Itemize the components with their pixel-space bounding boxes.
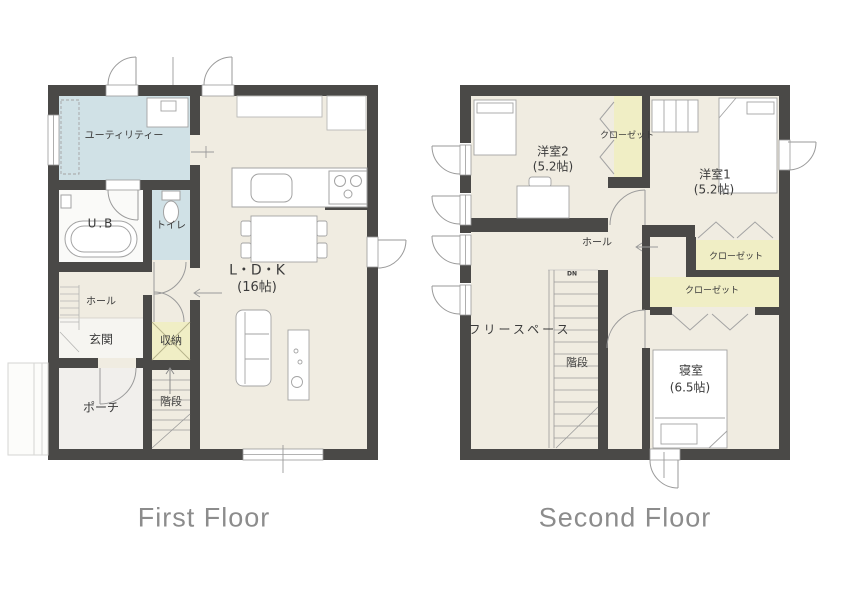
wall-segment <box>755 307 779 315</box>
wall-segment <box>460 449 650 460</box>
stairs-dn-label: DN <box>567 272 577 279</box>
wall-segment <box>323 449 378 460</box>
wall-segment <box>779 85 790 140</box>
closet-mid-label: クローゼット <box>709 253 763 263</box>
ldk-label: L・D・K <box>229 263 285 278</box>
wall-segment <box>48 449 243 460</box>
wall-segment <box>460 85 471 143</box>
wall-segment <box>325 202 367 210</box>
wall-segment <box>143 295 152 362</box>
wall-segment <box>642 232 650 310</box>
wall-segment <box>190 96 200 135</box>
first-floor-caption: First Floor <box>138 503 271 534</box>
floorplan-canvas: ユーティリティー U.B トイレ ホール 玄関 収納 ポーチ 階段 L・D・K … <box>0 0 842 595</box>
wall-segment <box>367 85 378 237</box>
second-floor-caption: Second Floor <box>539 503 712 534</box>
stairs-label: 階段 <box>160 396 182 408</box>
stairs-2f-label: 階段 <box>566 357 588 369</box>
wall-segment <box>367 267 378 460</box>
wall-segment <box>234 85 378 96</box>
hall-2f-label: ホール <box>582 238 612 249</box>
wall-segment <box>642 348 650 449</box>
storage-label: 収納 <box>160 335 182 347</box>
wall-segment <box>471 218 608 232</box>
western-room-1-size-label: (5.2帖) <box>694 183 734 196</box>
hall-label: ホール <box>86 297 116 308</box>
ldk-size-label: (16帖) <box>237 281 277 295</box>
toilet-room-label: トイレ <box>156 221 186 232</box>
wall-segment <box>460 263 471 283</box>
wall-segment <box>608 177 650 188</box>
wall-segment <box>138 85 202 96</box>
porch-label: ポーチ <box>83 401 119 414</box>
wall-segment <box>59 262 143 272</box>
bedroom-label: 寝室 <box>679 364 703 377</box>
free-space-label: フリースペース <box>469 323 572 336</box>
wall-segment <box>650 307 672 315</box>
wall-segment <box>48 165 59 460</box>
wall-segment <box>48 358 98 368</box>
wall-segment <box>48 85 59 115</box>
wall-segment <box>190 300 200 449</box>
wall-segment <box>686 270 779 277</box>
wall-segment <box>779 170 790 460</box>
approach-steps-icon <box>8 363 48 455</box>
western-room-2-label: 洋室2 <box>537 145 569 158</box>
wall-segment <box>143 368 152 449</box>
closet-top-label: クローゼット <box>600 132 654 142</box>
bath-room-label: U.B <box>88 217 115 230</box>
entrance-label: 玄関 <box>89 333 113 346</box>
bedroom-size-label: (6.5帖) <box>670 381 710 394</box>
western-room-2-size-label: (5.2帖) <box>533 160 573 173</box>
utility-room-label: ユーティリティー <box>85 131 164 142</box>
western-room-1-label: 洋室1 <box>699 168 731 181</box>
wall-segment <box>140 180 200 190</box>
wall-segment <box>143 190 152 272</box>
wall-segment <box>680 449 790 460</box>
wall-segment <box>460 223 471 233</box>
wall-segment <box>460 85 790 96</box>
wall-segment <box>59 180 106 190</box>
wall-segment <box>136 358 143 368</box>
closet-lower-label: クローゼット <box>685 287 739 297</box>
wall-segment <box>460 173 471 193</box>
wall-segment <box>598 270 608 449</box>
